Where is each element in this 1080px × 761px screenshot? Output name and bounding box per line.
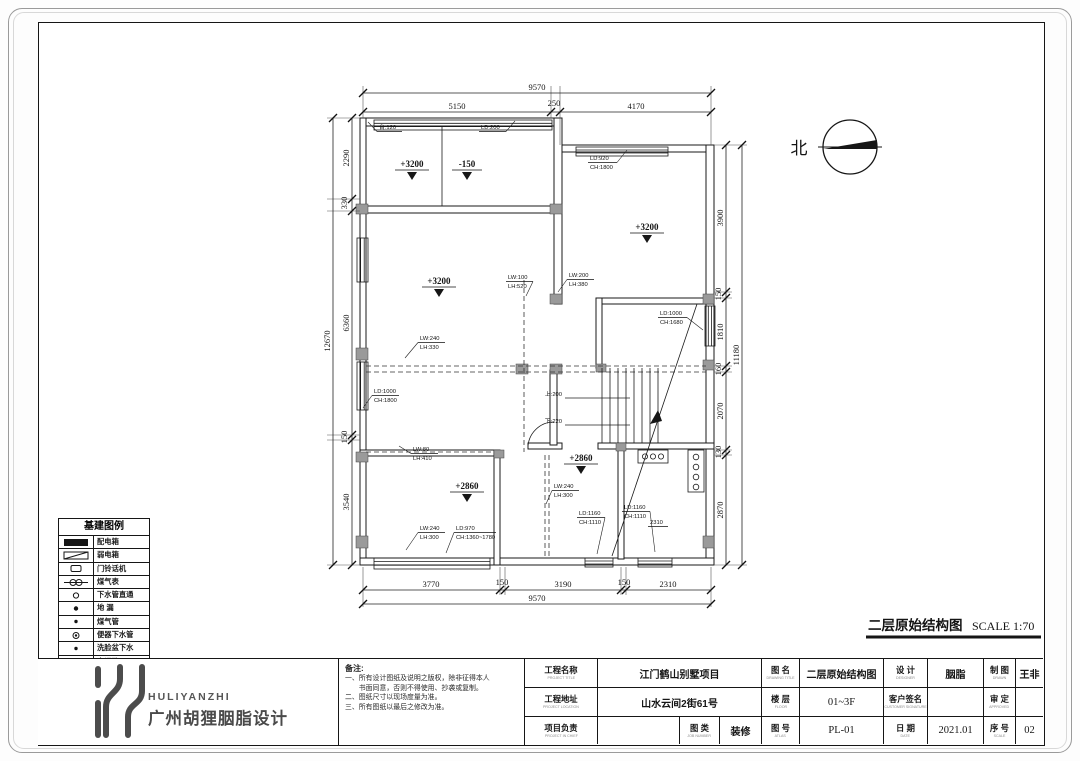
svg-text:LW:80: LW:80 <box>413 447 429 453</box>
legend-row: 洗脸盆下水 <box>59 642 149 655</box>
value-date: 2021.01 <box>928 717 984 744</box>
field-approved: 审 定 APPROVED <box>984 688 1016 717</box>
legend-title: 基建图例 <box>59 519 149 536</box>
svg-text:1810: 1810 <box>715 324 725 341</box>
value-serial-no: 02 <box>1016 717 1043 744</box>
logo-cell: HULIYANZHI 广州胡狸胭脂设计 <box>38 659 339 745</box>
svg-text:LH:330: LH:330 <box>420 345 439 351</box>
svg-text:3900: 3900 <box>715 210 725 227</box>
svg-text:+3200: +3200 <box>400 159 424 169</box>
dim-bottom: 3770 150 3190 150 2310 9570 <box>359 567 715 608</box>
north-needle-icon <box>823 140 877 149</box>
svg-text:11180: 11180 <box>731 345 741 366</box>
logo-en-text: HULIYANZHI <box>148 691 231 703</box>
svg-text:CH:1800: CH:1800 <box>590 165 613 171</box>
svg-text:LW:240: LW:240 <box>554 484 573 490</box>
svg-text:LD:1160: LD:1160 <box>579 511 601 517</box>
gas-meter-icon <box>59 576 94 588</box>
notes-line: 一、所有设计图纸及说明之版权，除非征得本人 <box>345 674 524 684</box>
field-floor: 楼 层 FLOOR <box>762 688 800 717</box>
title-block-table: 工程名称 PROJECT TITLE 江门鹤山别墅项目 图 名 DRAWING … <box>525 659 1043 745</box>
notes-line: 书面同意，否则不得使用、抄袭或复制。 <box>345 684 524 694</box>
dim-left: 2290 330 6360 150 3540 12670 <box>322 114 360 569</box>
value-drawn-by: 王非 <box>1016 659 1043 688</box>
svg-text:LH:380: LH:380 <box>569 282 588 288</box>
gas-pipe-icon <box>59 616 94 628</box>
svg-text:LW:240: LW:240 <box>420 336 439 342</box>
dim-right: 3900 150 1810 160 2070 130 2870 11180 <box>713 141 747 569</box>
field-project-chief: 项目负责 PROJECT IN CHIEF <box>525 717 598 744</box>
svg-text:130: 130 <box>713 446 723 459</box>
doorbell-intercom-icon <box>59 563 94 575</box>
floor-drain-icon <box>59 602 94 614</box>
value-project-location: 山水云间2街61号 <box>598 688 762 717</box>
drawing-title: 二层原始结构图 SCALE 1:70 <box>866 617 1041 637</box>
logo-cn-text: 广州胡狸胭脂设计 <box>148 705 288 729</box>
svg-text:150: 150 <box>618 577 631 587</box>
svg-text:LD:1000: LD:1000 <box>374 389 396 395</box>
north-label: 北 <box>791 139 808 158</box>
svg-text:CH:1360~1780: CH:1360~1780 <box>456 535 495 541</box>
value-job-type: 装修 <box>720 717 762 744</box>
value-designer: 胭脂 <box>928 659 984 688</box>
svg-text:CH:1110: CH:1110 <box>624 514 646 520</box>
value-customer-signature[interactable] <box>928 688 984 717</box>
windows <box>357 120 715 569</box>
svg-text:330: 330 <box>339 197 349 210</box>
svg-text:3770: 3770 <box>423 579 440 589</box>
svg-text:LH:300: LH:300 <box>554 493 573 499</box>
svg-text:3540: 3540 <box>341 494 351 511</box>
basin-drain-icon <box>59 642 94 654</box>
weak-current-box-icon <box>59 549 94 561</box>
svg-text:CH:1110: CH:1110 <box>579 520 601 526</box>
svg-text:2310: 2310 <box>650 520 663 526</box>
svg-text:2870: 2870 <box>715 502 725 519</box>
value-drawing-no: PL-01 <box>800 717 884 744</box>
field-designer: 设 计 DESIGNER <box>884 659 928 688</box>
notes-line: 三、所有图纸以最后之修改为准。 <box>345 703 524 713</box>
field-date: 日 期 DATE <box>884 717 928 744</box>
legend-row: 煤气管 <box>59 616 149 629</box>
svg-text:150: 150 <box>339 431 349 444</box>
svg-text:250: 250 <box>548 98 561 108</box>
legend-row: 弱电箱 <box>59 549 149 562</box>
svg-text:+3200: +3200 <box>635 222 659 232</box>
svg-text:LH:520: LH:520 <box>508 284 527 290</box>
svg-text:LW:100: LW:100 <box>508 275 527 281</box>
floor-plan-svg: 上:200 下:220 9570 <box>0 0 1080 761</box>
svg-text:LW:200: LW:200 <box>569 273 588 279</box>
walls <box>360 118 714 565</box>
structural-columns <box>356 204 714 548</box>
value-drawing-title: 二层原始结构图 <box>800 659 884 688</box>
legend-row: 下水管直通 <box>59 589 149 602</box>
north-arrow: 北 <box>791 120 883 174</box>
value-project-title: 江门鹤山别墅项目 <box>598 659 762 688</box>
dim-top: 9570 5150 250 4170 <box>359 82 715 145</box>
svg-text:LD:970: LD:970 <box>456 526 475 532</box>
svg-text:LW:240: LW:240 <box>420 526 439 532</box>
field-drawing-title: 图 名 DRAWING TITLE <box>762 659 800 688</box>
svg-text:150: 150 <box>713 288 723 301</box>
drawing-sheet: 上:200 下:220 9570 <box>0 0 1080 761</box>
svg-text:12670: 12670 <box>322 330 332 351</box>
svg-text:2290: 2290 <box>341 150 351 167</box>
svg-text:160: 160 <box>713 363 723 376</box>
svg-text:6360: 6360 <box>341 315 351 332</box>
title-strip: HULIYANZHI 广州胡狸胭脂设计 备注: 一、所有设计图纸及说明之版权，除… <box>38 658 1043 745</box>
value-approved <box>1016 688 1043 717</box>
value-floor: 01~3F <box>800 688 884 717</box>
svg-text:+2860: +2860 <box>455 481 479 491</box>
svg-text:4170: 4170 <box>628 101 645 111</box>
svg-text:-150: -150 <box>459 159 476 169</box>
svg-text:5150: 5150 <box>449 101 466 111</box>
stair-up-label: 上:200 <box>545 390 562 398</box>
field-drawing-no: 图 号 ATLAS <box>762 717 800 744</box>
legend-box: 基建图例 配电箱 弱电箱 门铃话机 煤气表 下水管直通 <box>58 518 150 660</box>
drain-pipe-icon <box>59 589 94 601</box>
legend-row: 配电箱 <box>59 536 149 549</box>
svg-text:LD:1160: LD:1160 <box>624 505 646 511</box>
legend-row: 便器下水管 <box>59 629 149 642</box>
drawing-title-text: 二层原始结构图 <box>868 617 963 633</box>
svg-text:9570: 9570 <box>529 593 546 603</box>
svg-text:3190: 3190 <box>555 579 572 589</box>
field-project-location: 工程地址 PROJECT LOCATION <box>525 688 598 717</box>
notes-cell: 备注: 一、所有设计图纸及说明之版权，除非征得本人 书面同意，否则不得使用、抄袭… <box>338 659 525 745</box>
field-serial-no: 序 号 SCALE <box>984 717 1016 744</box>
svg-text:150: 150 <box>496 577 509 587</box>
svg-text:+3200: +3200 <box>427 276 451 286</box>
svg-text:LD:1000: LD:1000 <box>660 311 682 317</box>
notes-title: 备注: <box>345 663 524 674</box>
opening-annotations: 台:120 LD:200 LD:920 CH:1800 LW:100 LH:52… <box>363 121 703 554</box>
field-drawn-by: 制 图 DRAWN <box>984 659 1016 688</box>
distribution-box-icon <box>59 536 94 548</box>
toilet-drain-icon <box>59 629 94 641</box>
value-project-chief <box>598 717 680 744</box>
field-job-type: 图 类 JOB NUMBER <box>680 717 720 744</box>
drawing-scale-text: SCALE 1:70 <box>972 619 1034 633</box>
svg-text:2310: 2310 <box>660 579 677 589</box>
legend-row: 煤气表 <box>59 576 149 589</box>
field-customer-signature: 客户签名 CUSTOMER SIGNATURE <box>884 688 928 717</box>
svg-text:2070: 2070 <box>715 403 725 420</box>
legend-row: 门铃话机 <box>59 563 149 576</box>
legend-row: 地 漏 <box>59 602 149 615</box>
svg-text:LH:410: LH:410 <box>413 456 432 462</box>
svg-text:CH:1680: CH:1680 <box>660 320 683 326</box>
svg-text:CH:1800: CH:1800 <box>374 398 397 404</box>
svg-text:LH:300: LH:300 <box>420 535 439 541</box>
notes-line: 二、图纸尺寸以现场度量为准。 <box>345 693 524 703</box>
svg-text:LD:200: LD:200 <box>481 125 500 131</box>
fixtures <box>638 450 704 492</box>
svg-text:LD:920: LD:920 <box>590 156 609 162</box>
svg-text:台:120: 台:120 <box>379 123 396 131</box>
svg-text:+2860: +2860 <box>569 453 593 463</box>
stair-down-label: 下:220 <box>545 418 562 425</box>
svg-text:9570: 9570 <box>529 82 546 92</box>
field-project-title: 工程名称 PROJECT TITLE <box>525 659 598 688</box>
